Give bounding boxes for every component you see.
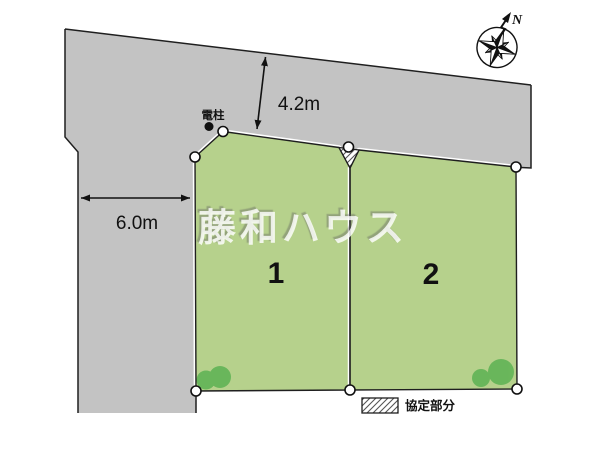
vertex-marker [191, 386, 201, 396]
utility-pole-icon [205, 122, 214, 131]
dimension-label-6-0m: 6.0m [116, 213, 158, 234]
vertex-marker [345, 385, 355, 395]
shrub-icon [209, 366, 231, 388]
vertex-marker [512, 384, 522, 394]
lot-2-number: 2 [423, 258, 440, 291]
legend-label: 協定部分 [405, 398, 456, 413]
shrub-icon [488, 359, 514, 385]
compass-rose-icon: N [471, 12, 523, 73]
vertex-marker [190, 152, 200, 162]
site-plan-canvas: 電柱 4.2m 6.0m 藤和ハウス 1 2 [0, 0, 600, 450]
north-label: N [511, 13, 523, 28]
utility-pole-label: 電柱 [202, 108, 225, 122]
vertex-marker [511, 162, 521, 172]
vertex-marker [218, 127, 228, 137]
site-plan: 電柱 4.2m 6.0m 藤和ハウス 1 2 [0, 0, 600, 450]
lot-1-number: 1 [268, 257, 285, 290]
legend-hatch-swatch [362, 398, 398, 413]
shrub-icon [472, 369, 490, 387]
vertex-marker [344, 142, 354, 152]
north-arrowhead-icon [502, 12, 511, 23]
watermark: 藤和ハウス [198, 208, 408, 250]
dimension-label-4-2m: 4.2m [278, 94, 320, 115]
legend: 協定部分 [362, 398, 456, 413]
